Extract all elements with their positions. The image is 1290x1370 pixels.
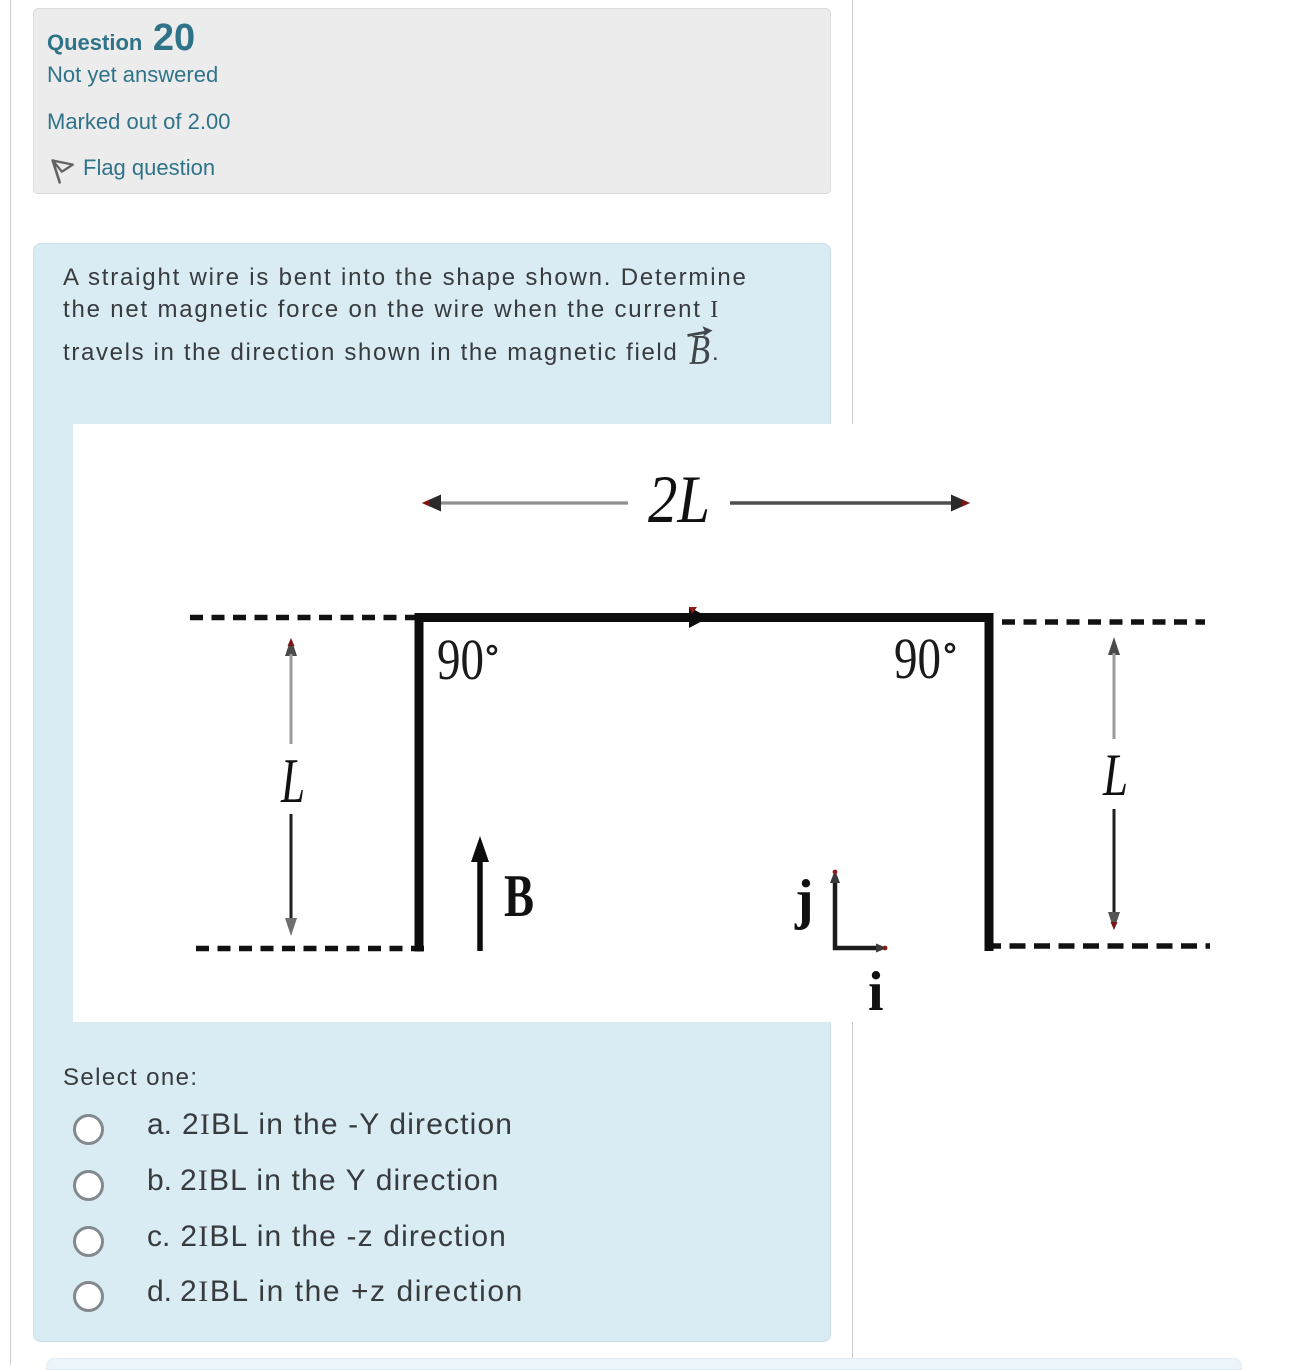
svg-text:i: i bbox=[868, 961, 884, 1022]
svg-text:L: L bbox=[280, 745, 305, 816]
svg-text:90: 90 bbox=[894, 626, 941, 691]
svg-text:2L: 2L bbox=[648, 461, 710, 537]
svg-text:90: 90 bbox=[437, 627, 484, 692]
svg-text:B: B bbox=[504, 863, 534, 929]
svg-text:j: j bbox=[794, 869, 814, 931]
svg-text:L: L bbox=[1102, 742, 1128, 808]
